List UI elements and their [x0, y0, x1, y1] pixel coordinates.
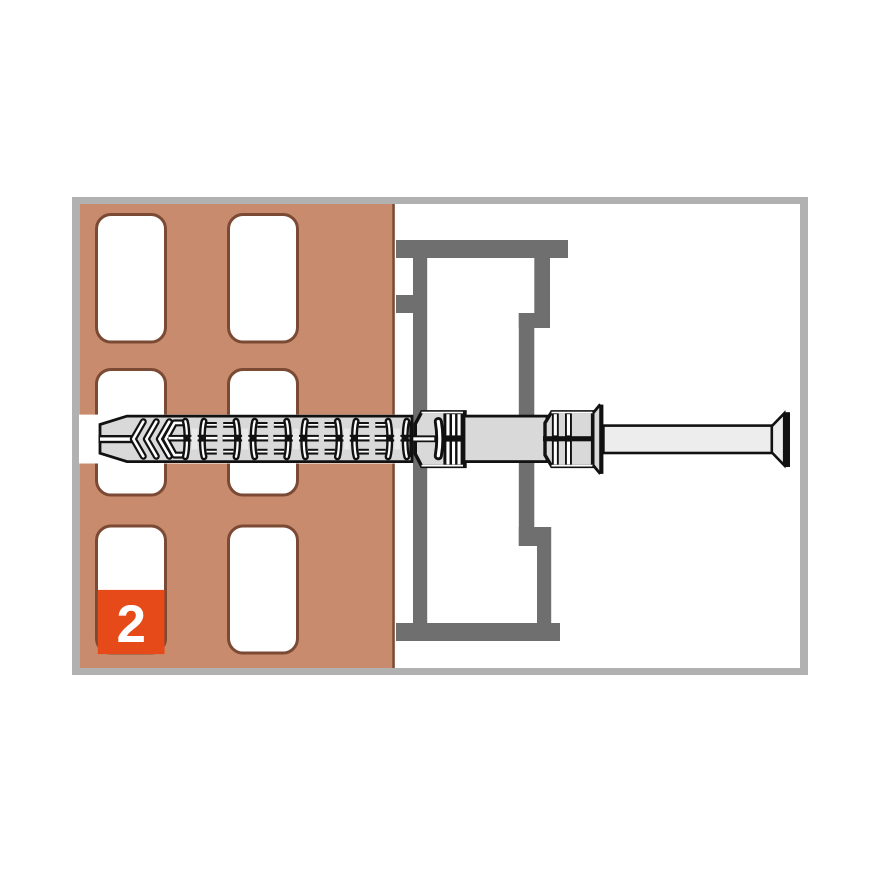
svg-text:2: 2	[117, 595, 146, 654]
